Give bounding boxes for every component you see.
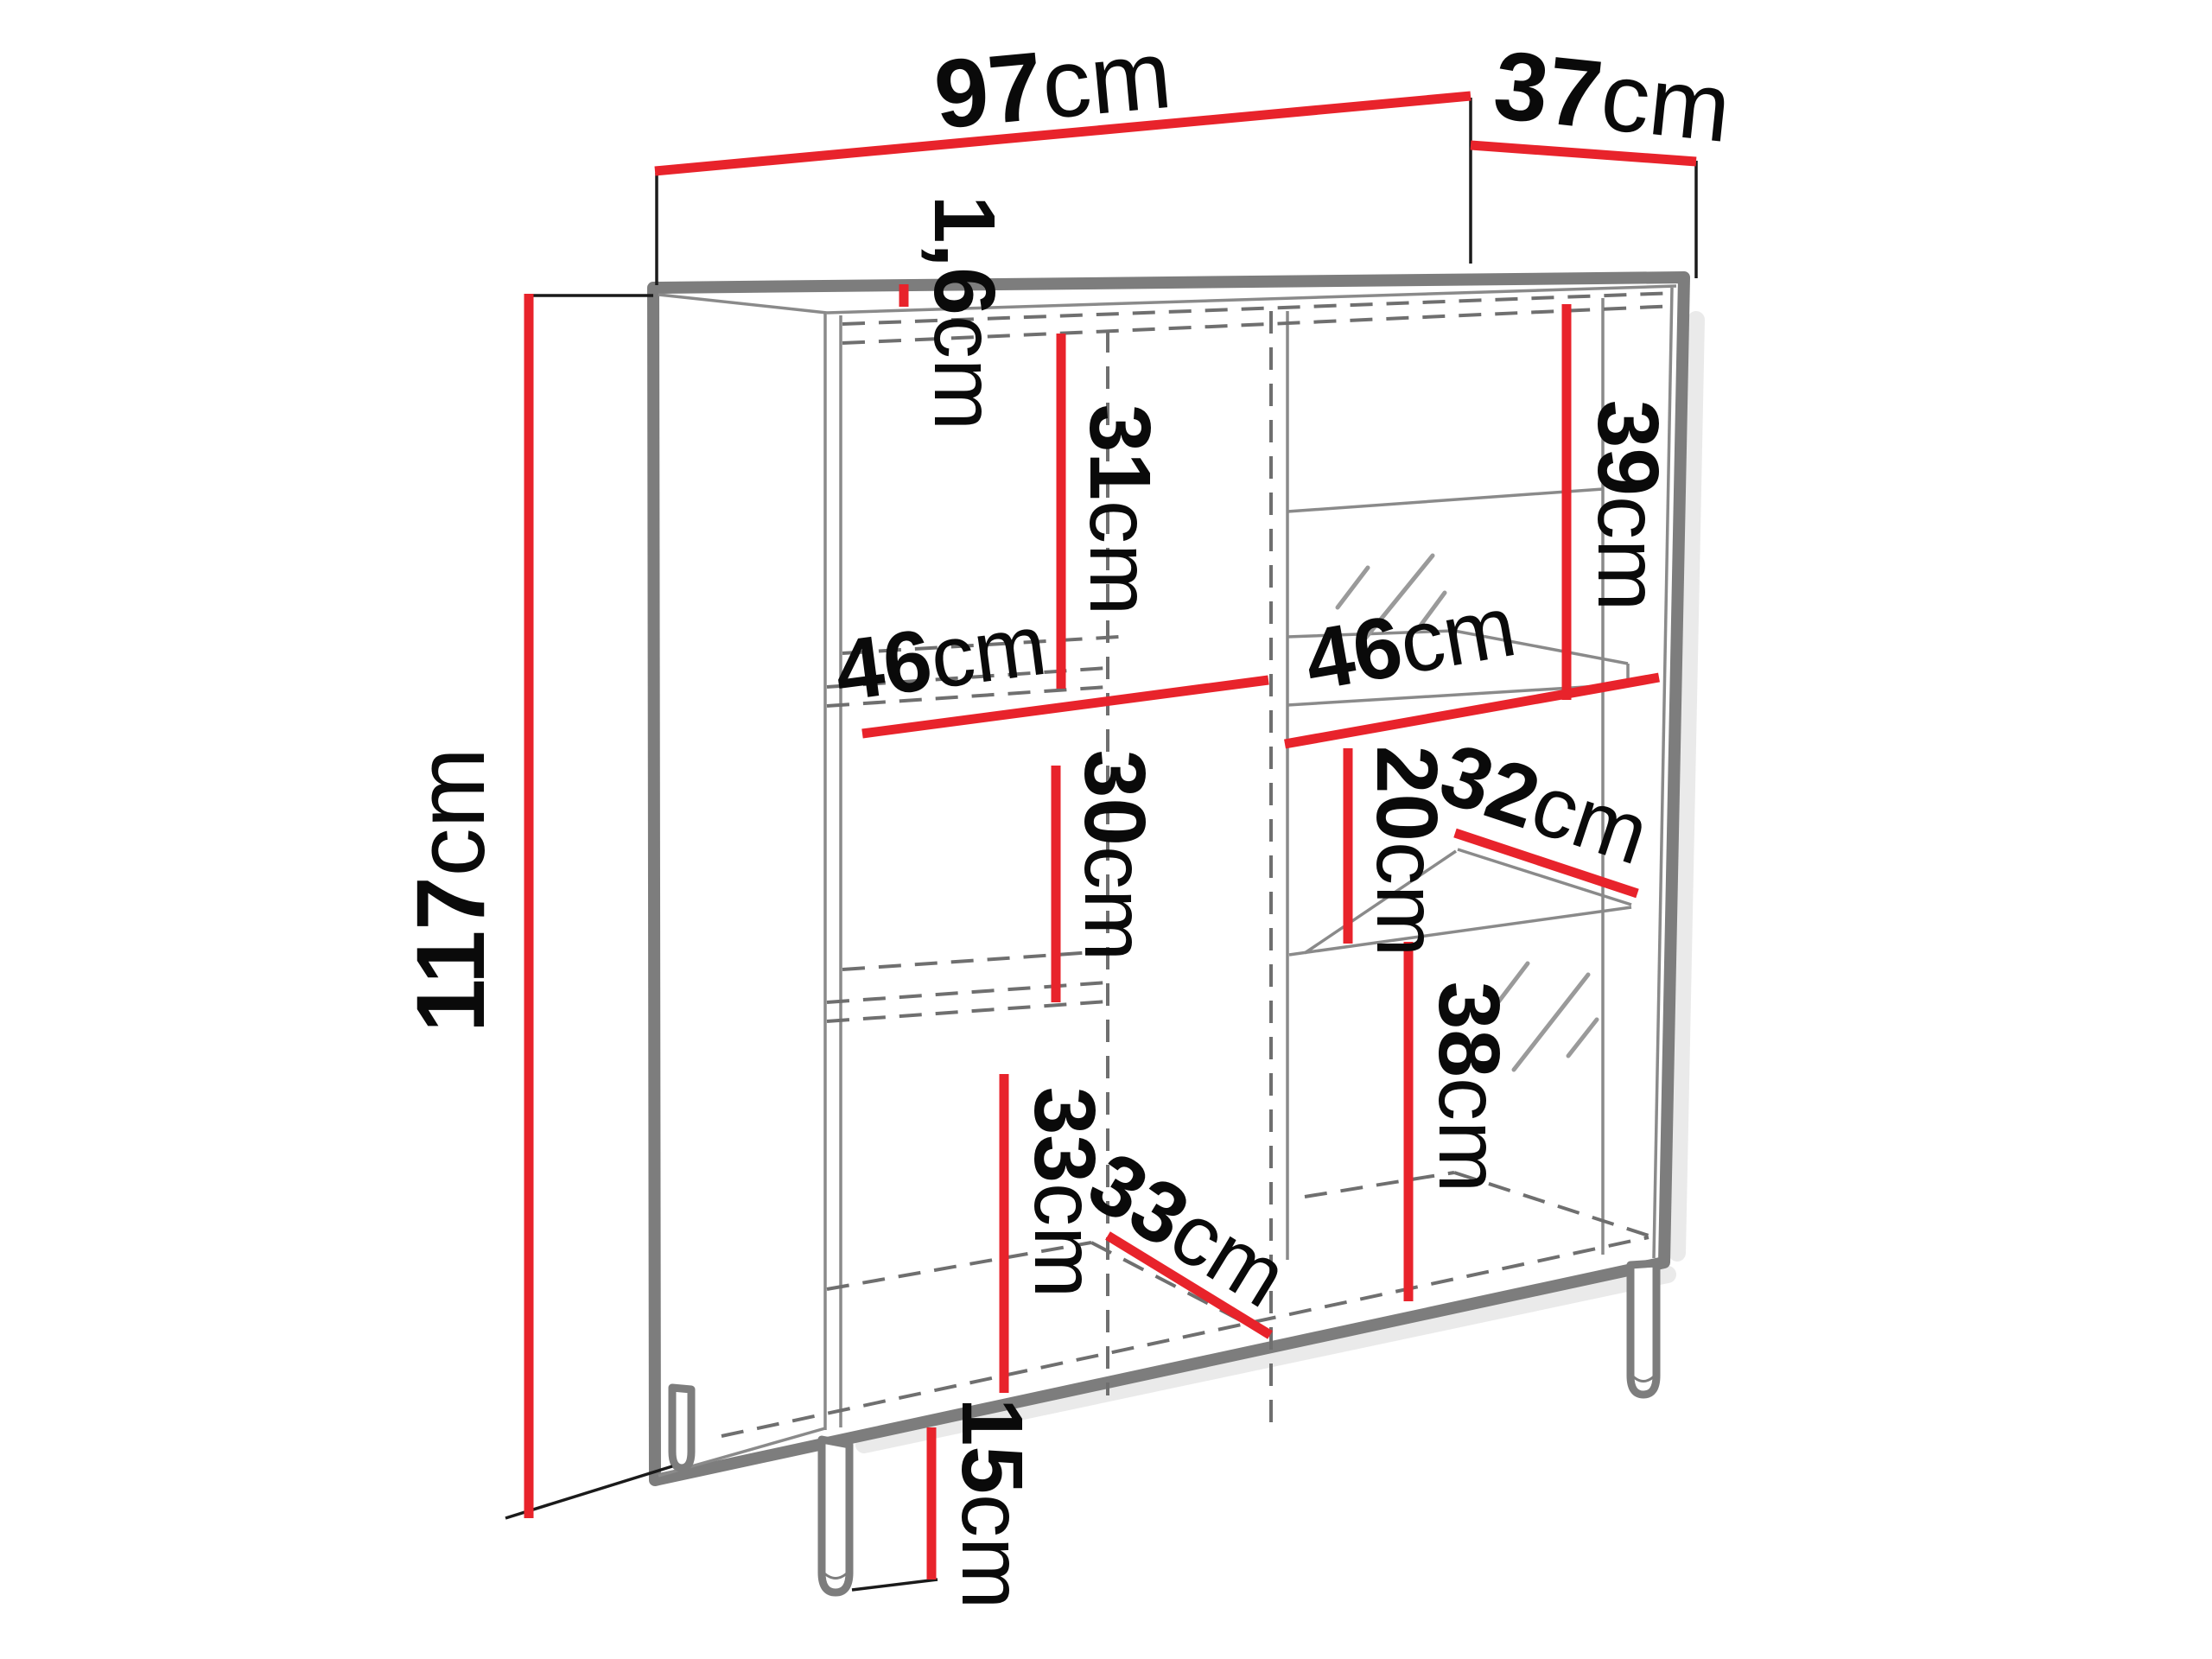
dim-label-right-middle-height: 20cm [1358, 746, 1455, 957]
dim-label-right-inner-width: 46cm [1298, 577, 1522, 709]
leg-back-left [672, 1388, 691, 1468]
left-shelf-b-front-top [827, 982, 1108, 1002]
dimension-labels: 97cm 37cm 117cm 1,6cm 31cm 46cm 30cm 33c… [397, 20, 1736, 1609]
left-shelf-b-front-bottom [827, 1001, 1108, 1021]
dim-label-overall-height: 117cm [397, 747, 505, 1033]
dim-label-left-upper-height: 31cm [1071, 404, 1168, 616]
diagram-stage: 97cm 37cm 117cm 1,6cm 31cm 46cm 30cm 33c… [0, 0, 2212, 1659]
wood-shelf-2-front [1289, 907, 1631, 955]
dim-label-left-middle-height: 30cm [1066, 750, 1163, 962]
dim-label-left-inner-width: 46cm [829, 596, 1052, 720]
leg-front-right [1630, 1263, 1656, 1395]
top-slab-left-edge [658, 295, 827, 313]
leg-front-left [822, 1440, 849, 1592]
dim-label-right-upper-height: 39cm [1580, 400, 1676, 612]
furniture-dimension-diagram: 97cm 37cm 117cm 1,6cm 31cm 46cm 30cm 33c… [0, 0, 2212, 1659]
glass-shelf-upper [1287, 489, 1603, 512]
dim-label-overall-depth: 37cm [1489, 30, 1735, 162]
dim-label-top-thickness: 1,6cm [916, 195, 1013, 430]
dim-label-leg-height: 15cm [944, 1398, 1040, 1610]
ext-leg-bottom [852, 1580, 938, 1590]
dim-label-overall-width: 97cm [930, 20, 1175, 149]
dim-label-right-lower-height: 38cm [1421, 982, 1517, 1193]
